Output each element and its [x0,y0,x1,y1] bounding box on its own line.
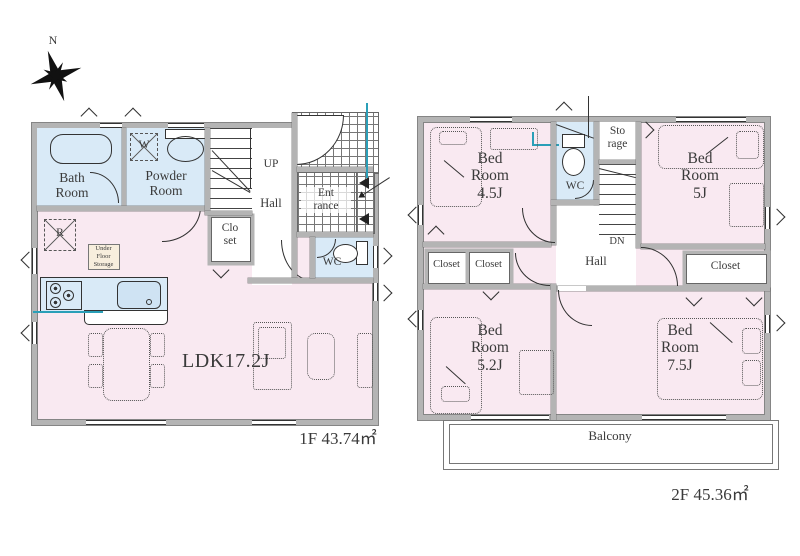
floor1-area-label: 1F 43.74㎡ [288,429,388,448]
wall-segment [205,128,210,214]
burner-icon [63,290,74,301]
hall-2f-label: Hall [560,254,632,268]
pillow-icon [439,131,467,145]
wc-1f-label: WC [317,256,347,269]
pillow-icon [742,360,761,386]
wall-segment [423,242,551,247]
ldk-label: LDK17.2J [166,350,286,372]
dining-table-icon [103,328,150,401]
desk-icon [490,128,538,150]
toilet-icon [562,148,585,176]
wall-segment [636,122,641,248]
closet-2f-label: Closet [428,259,465,271]
shoe-cabinet-marker [359,177,369,189]
wall-segment [641,244,765,249]
floor2-area-label: 2F 45.36㎡ [655,485,765,504]
floorplan-canvas: N W Bath Room Powder Room UP Hall Clo se… [0,0,800,556]
chair-icon [88,364,103,388]
leader-line [588,96,589,138]
opening-chevron [769,315,786,332]
storage-label: Sto rage [599,125,636,151]
hall-1f-label: Hall [248,196,294,210]
window [252,420,296,425]
wall-segment [292,113,297,280]
window [168,123,204,128]
opening-chevron [556,102,573,119]
opening-chevron [376,285,393,302]
plumbing-line [33,311,103,313]
under-floor-storage-label: Under Floor Storage [88,245,119,269]
wall-segment [205,211,252,215]
fridge-label: R [44,227,76,240]
chair-icon [150,333,165,357]
wall-segment [599,160,636,164]
chair-icon [150,364,165,388]
burner-icon [50,283,61,294]
wall-segment [37,206,205,211]
pillow-icon [742,328,761,354]
closet-2f-label: Closet [469,259,508,271]
window [100,123,122,128]
powder-label: Powder Room [128,168,204,198]
kitchen-sink-icon [117,281,161,309]
wall-segment [310,237,315,278]
opening-chevron [125,108,142,125]
bedroom-52-label: Bed Room 5.2J [440,322,540,374]
wall-segment [297,232,373,237]
opening-chevron [81,108,98,125]
wall-segment [551,200,599,205]
entrance-label: Ent rance [301,187,351,213]
shoe-cabinet-marker [359,213,369,225]
closet-1f-label: Clo set [211,222,249,248]
vanity-sink-icon [167,136,204,162]
dn-label: DN [600,236,634,248]
window [676,117,746,122]
toilet-icon [562,134,585,148]
bathtub-icon [50,134,112,164]
pillow-icon [441,386,470,402]
wall-segment [248,278,373,283]
coffee-table-icon [307,333,335,380]
bedroom-45-label: Bed Room 4.5J [440,150,540,202]
opening-chevron [376,248,393,265]
balcony-label: Balcony [560,429,660,444]
sink-drain [146,299,152,305]
bath-label: Bath Room [40,170,104,200]
washer-label: W [130,139,158,152]
bedroom-5-label: Bed Room 5J [650,150,750,202]
tv-board-icon [357,333,373,388]
window [470,117,512,122]
closet-2f-label: Closet [686,260,765,273]
burner-icon [50,297,61,308]
opening-chevron [769,209,786,226]
wall-segment [122,128,126,206]
wall-segment [297,167,373,172]
plumbing-line [366,103,368,178]
up-label: UP [250,158,292,171]
bedroom-75-label: Bed Room 7.5J [625,322,735,374]
chair-icon [88,333,103,357]
window [86,420,166,425]
compass-icon [21,41,92,112]
